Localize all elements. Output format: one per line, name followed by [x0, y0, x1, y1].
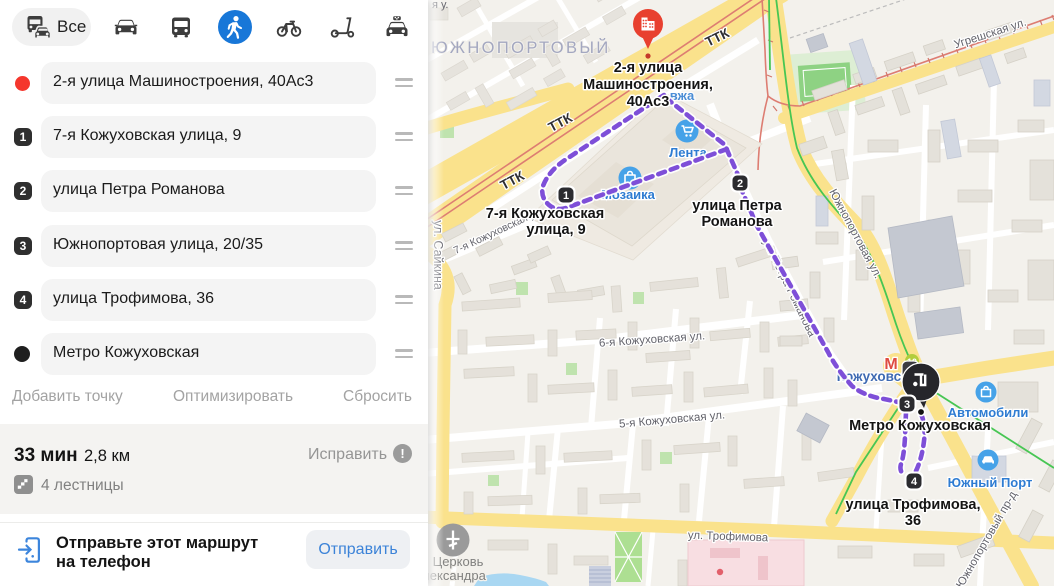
svg-text:7-я Кожуховская: 7-я Кожуховская	[486, 206, 604, 222]
svg-text:40Ас3: 40Ас3	[627, 94, 670, 110]
svg-text:Романова: Романова	[702, 214, 774, 230]
svg-text:улица Петра: улица Петра	[692, 198, 782, 214]
svg-text:улица, 9: улица, 9	[526, 222, 585, 238]
svg-text:4: 4	[911, 476, 918, 488]
svg-text:2-я улица: 2-я улица	[614, 60, 683, 76]
svg-text:Метро Кожуховская: Метро Кожуховская	[849, 418, 991, 434]
svg-text:ЮЖНОПОРТОВЫЙ: ЮЖНОПОРТОВЫЙ	[431, 38, 611, 57]
svg-text:улица Трофимова,: улица Трофимова,	[845, 497, 980, 513]
svg-text:36: 36	[905, 513, 921, 529]
svg-text:1: 1	[563, 190, 569, 202]
svg-text:3: 3	[904, 399, 910, 411]
svg-text:Южный Порт: Южный Порт	[948, 475, 1033, 490]
svg-text:Машиностроения,: Машиностроения,	[583, 77, 713, 93]
svg-text:2: 2	[737, 178, 743, 190]
